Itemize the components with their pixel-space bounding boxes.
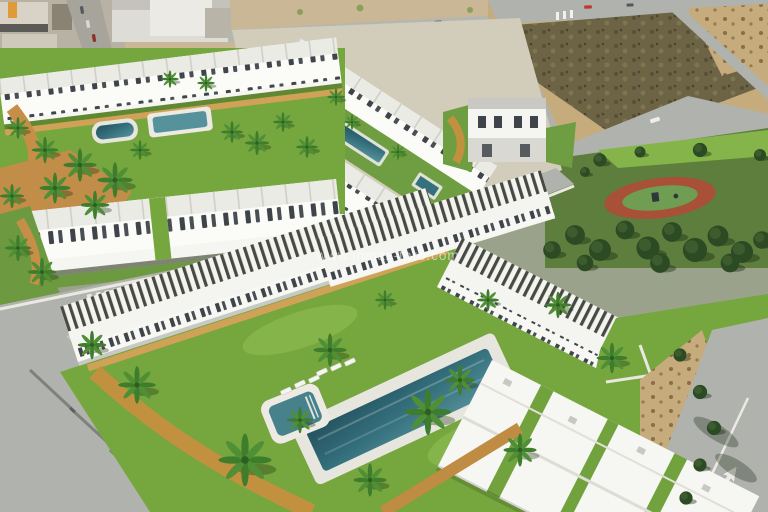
play-equipment-icon (651, 192, 659, 202)
orange-sign (8, 2, 17, 18)
bush-icon (467, 7, 473, 13)
chalet-window (530, 116, 538, 128)
bush-icon (357, 5, 364, 12)
car-icon (626, 3, 633, 6)
bush-icon (297, 9, 303, 15)
chalet-window (494, 116, 502, 128)
town-house (0, 2, 48, 24)
red-car-icon (584, 5, 592, 9)
watermark-text: www.inmax-toro.com (315, 248, 459, 263)
aerial-render: www.inmax-toro.com (0, 0, 768, 512)
town-roof (0, 24, 48, 32)
chalet-window (478, 116, 486, 128)
aerial-scene: www.inmax-toro.com (0, 0, 768, 512)
chalet-window (514, 116, 522, 128)
